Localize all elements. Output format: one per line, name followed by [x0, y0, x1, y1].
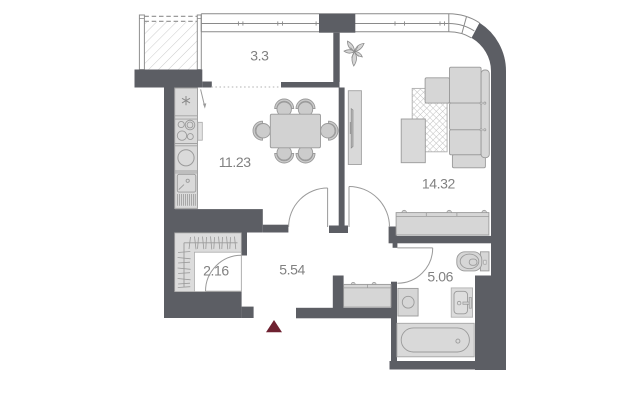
- svg-text:3.3: 3.3: [250, 48, 269, 64]
- svg-text:14.32: 14.32: [422, 176, 456, 192]
- svg-text:11.23: 11.23: [219, 154, 252, 170]
- svg-text:2.16: 2.16: [203, 263, 229, 279]
- svg-text:5.54: 5.54: [279, 262, 305, 278]
- svg-text:5.06: 5.06: [427, 269, 453, 285]
